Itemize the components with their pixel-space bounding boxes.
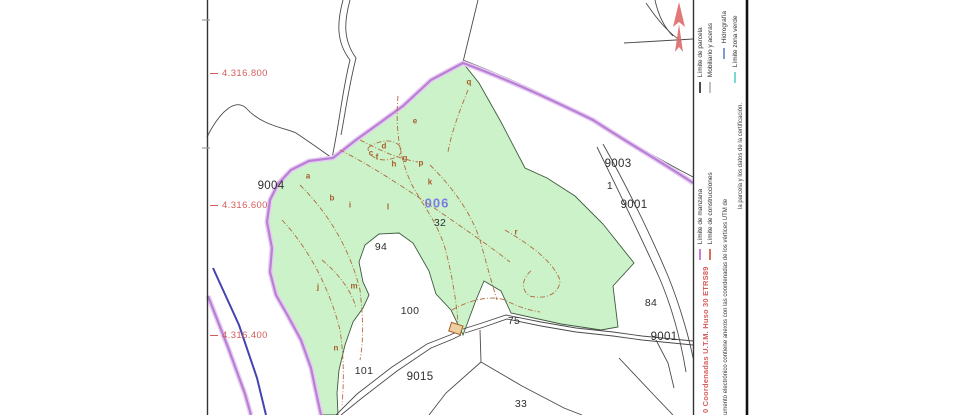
grid-tick-icon [210, 73, 218, 75]
subparcel-letter-j: j [317, 283, 319, 292]
parcel-label-84: 84 [645, 297, 657, 309]
subparcel-letter-g: g [403, 154, 408, 163]
subparcel-letter-f: f [376, 153, 379, 162]
legend-item-limite-manzana: Límite de manzana [697, 189, 704, 260]
subparcel-letter-l: l [387, 203, 389, 212]
legend-item-mobiliario-aceras: Mobiliario y aceras [707, 23, 714, 93]
subparcel-letter-n: n [334, 344, 339, 353]
hydrography-line [213, 268, 266, 415]
parcela-line-swatch-icon [699, 82, 701, 93]
subparcel-letter-c: c [369, 149, 373, 158]
certificate-disclaimer-line2: la parcela y los datos de la certificaci… [738, 103, 744, 209]
highlight-parcel-label-006: 006 [425, 196, 450, 211]
subparcel-letter-q: q [467, 78, 472, 87]
subparcel-letter-m: m [350, 282, 357, 291]
parcel-label-9004: 9004 [258, 180, 285, 192]
parcel-label-1: 1 [607, 180, 613, 192]
hidrografia-line-swatch-icon [723, 48, 725, 59]
cadastral-certificate-page: 4.316.800 4.316.600 4.316.400 9004 9003 … [0, 0, 960, 415]
legend-item-limite-zona-verde: Límite zona verde [732, 16, 739, 83]
subparcel-letter-h: h [392, 160, 397, 169]
subparcel-letter-k: k [428, 178, 432, 187]
parcel-label-33: 33 [515, 398, 527, 410]
parcel-label-9015: 9015 [407, 371, 434, 383]
subparcel-letter-r: r [514, 228, 517, 237]
subparcel-letter-a: a [306, 172, 310, 181]
construcciones-line-swatch-icon [709, 249, 711, 260]
utm-coordinates-note: 0 Coordenadas U.T.M. Huso 30 ETRS89 [701, 266, 710, 413]
parcel-label-9003: 9003 [605, 158, 632, 170]
grid-tick-icon [210, 205, 218, 207]
utm-grid-label: 4.316.400 [210, 330, 268, 341]
parcel-label-9001: 9001 [621, 199, 648, 211]
parcel-label-101: 101 [355, 365, 373, 377]
mobiliario-line-swatch-icon [709, 82, 711, 93]
legend-item-limite-construcciones: Límite de construcciones [707, 172, 714, 260]
parcel-label-9001-south: 9001 [651, 331, 678, 343]
subparcel-letter-b: b [330, 194, 335, 203]
parcel-label-94: 94 [375, 241, 387, 253]
subparcel-letter-i: i [349, 201, 351, 210]
utm-grid-label: 4.316.800 [210, 68, 268, 79]
subparcel-letter-p: p [419, 159, 424, 168]
cadastral-map-canvas [0, 0, 960, 415]
utm-grid-label: 4.316.600 [210, 200, 268, 211]
legend-item-hidrografia: Hidrografía [721, 11, 728, 59]
grid-tick-icon [210, 335, 218, 337]
manzana-line-swatch-icon [699, 249, 701, 260]
legend-item-limite-parcela: Límite de parcela [697, 27, 704, 93]
parcel-label-32: 32 [434, 217, 446, 229]
certificate-disclaimer-line1: umento electrónico contiene anexos con l… [723, 199, 729, 415]
subparcel-letter-e: e [413, 117, 417, 126]
north-arrow-icon [673, 2, 685, 52]
parcel-label-100: 100 [401, 305, 419, 317]
subparcel-letter-d: d [382, 142, 387, 151]
parcel-label-75: 75 [508, 315, 520, 327]
legend-strip: 0 Coordenadas U.T.M. Huso 30 ETRS89 Lími… [697, 0, 749, 415]
zona-verde-line-swatch-icon [734, 72, 736, 83]
